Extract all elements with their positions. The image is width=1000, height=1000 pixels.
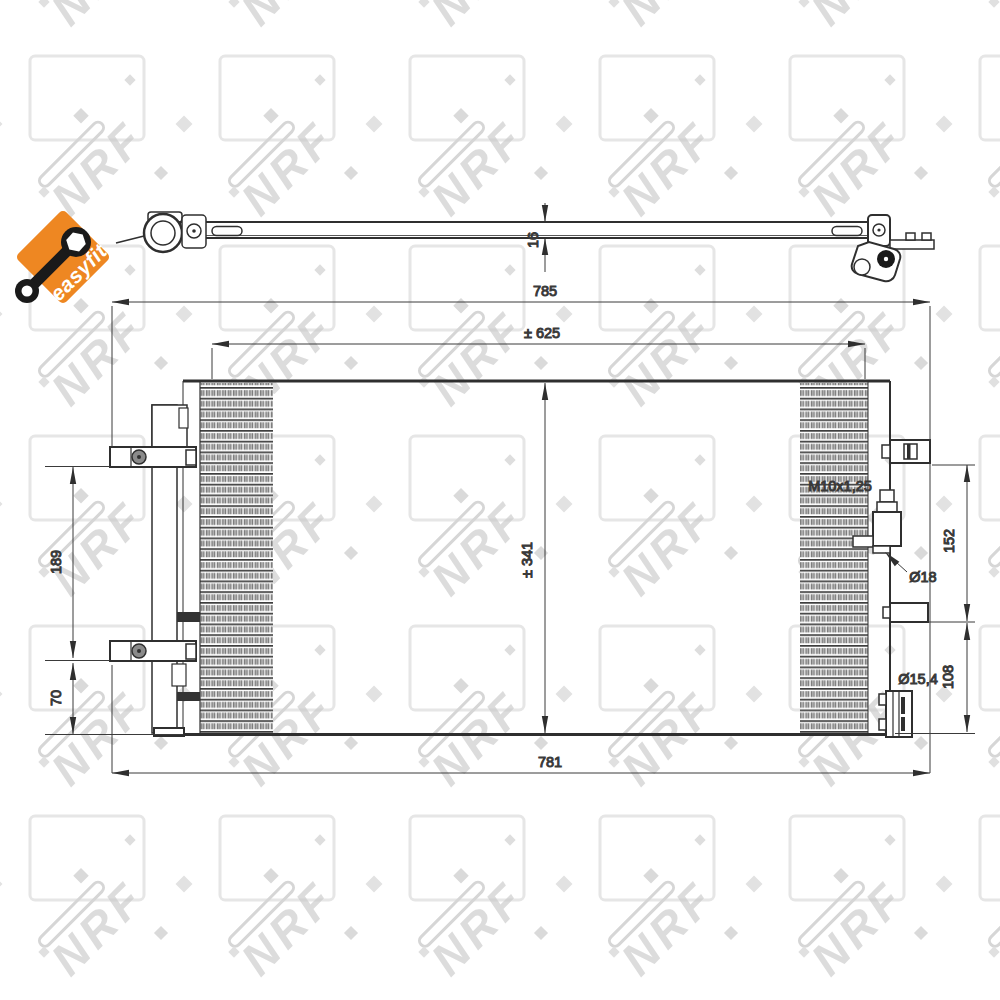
upper-port-diameter-label: Ø18 [909,569,936,585]
dimension-label-depth: 16 [525,232,541,248]
upper-bracket-fitting [882,440,930,463]
mount-slot-right [832,227,862,236]
dimension-label-mount-width: ± 625 [524,325,560,341]
lower-port-diameter-label: Ø15,4 [898,671,938,687]
mounting-bracket-lower [110,641,196,661]
fin-core-left [200,383,273,733]
mount-slot-left [212,227,242,236]
dimension-label-upper-port-span: 152 [941,529,957,553]
mid-port-fitting [883,603,928,622]
thread-spec-label: M10x1,25 [808,478,872,494]
dimension-label-lower-port-span: 108 [940,665,956,689]
product-image: NRF [0,0,1000,1000]
dimension-label-lower-width: 781 [538,754,562,770]
dimension-label-overall-width: 785 [533,283,557,299]
technical-drawing: NRF [0,0,1000,1000]
dimension-label-bracket-offset: 70 [48,690,64,706]
dimension-label-core-height: ± 341 [519,542,535,578]
mounting-bracket-upper [110,447,196,467]
dimension-label-bracket-span: 189 [48,550,64,574]
fin-core-right [800,383,868,733]
